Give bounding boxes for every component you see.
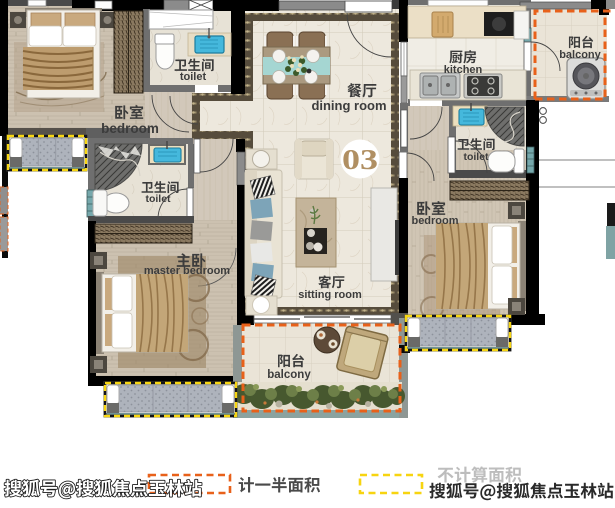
svg-text:dining room: dining room — [311, 98, 386, 113]
svg-text:sitting room: sitting room — [298, 289, 362, 301]
svg-text:master bedroom: master bedroom — [144, 265, 230, 277]
svg-text:03: 03 — [342, 144, 378, 176]
svg-text:toilet: toilet — [180, 71, 207, 83]
svg-text:balcony: balcony — [559, 49, 601, 61]
svg-text:kitchen: kitchen — [444, 64, 483, 76]
svg-text:bedroom: bedroom — [411, 215, 458, 227]
svg-text:toilet: toilet — [145, 193, 171, 205]
svg-text:bedroom: bedroom — [101, 121, 159, 136]
svg-text:toilet: toilet — [463, 151, 489, 163]
svg-text:balcony: balcony — [267, 369, 311, 381]
